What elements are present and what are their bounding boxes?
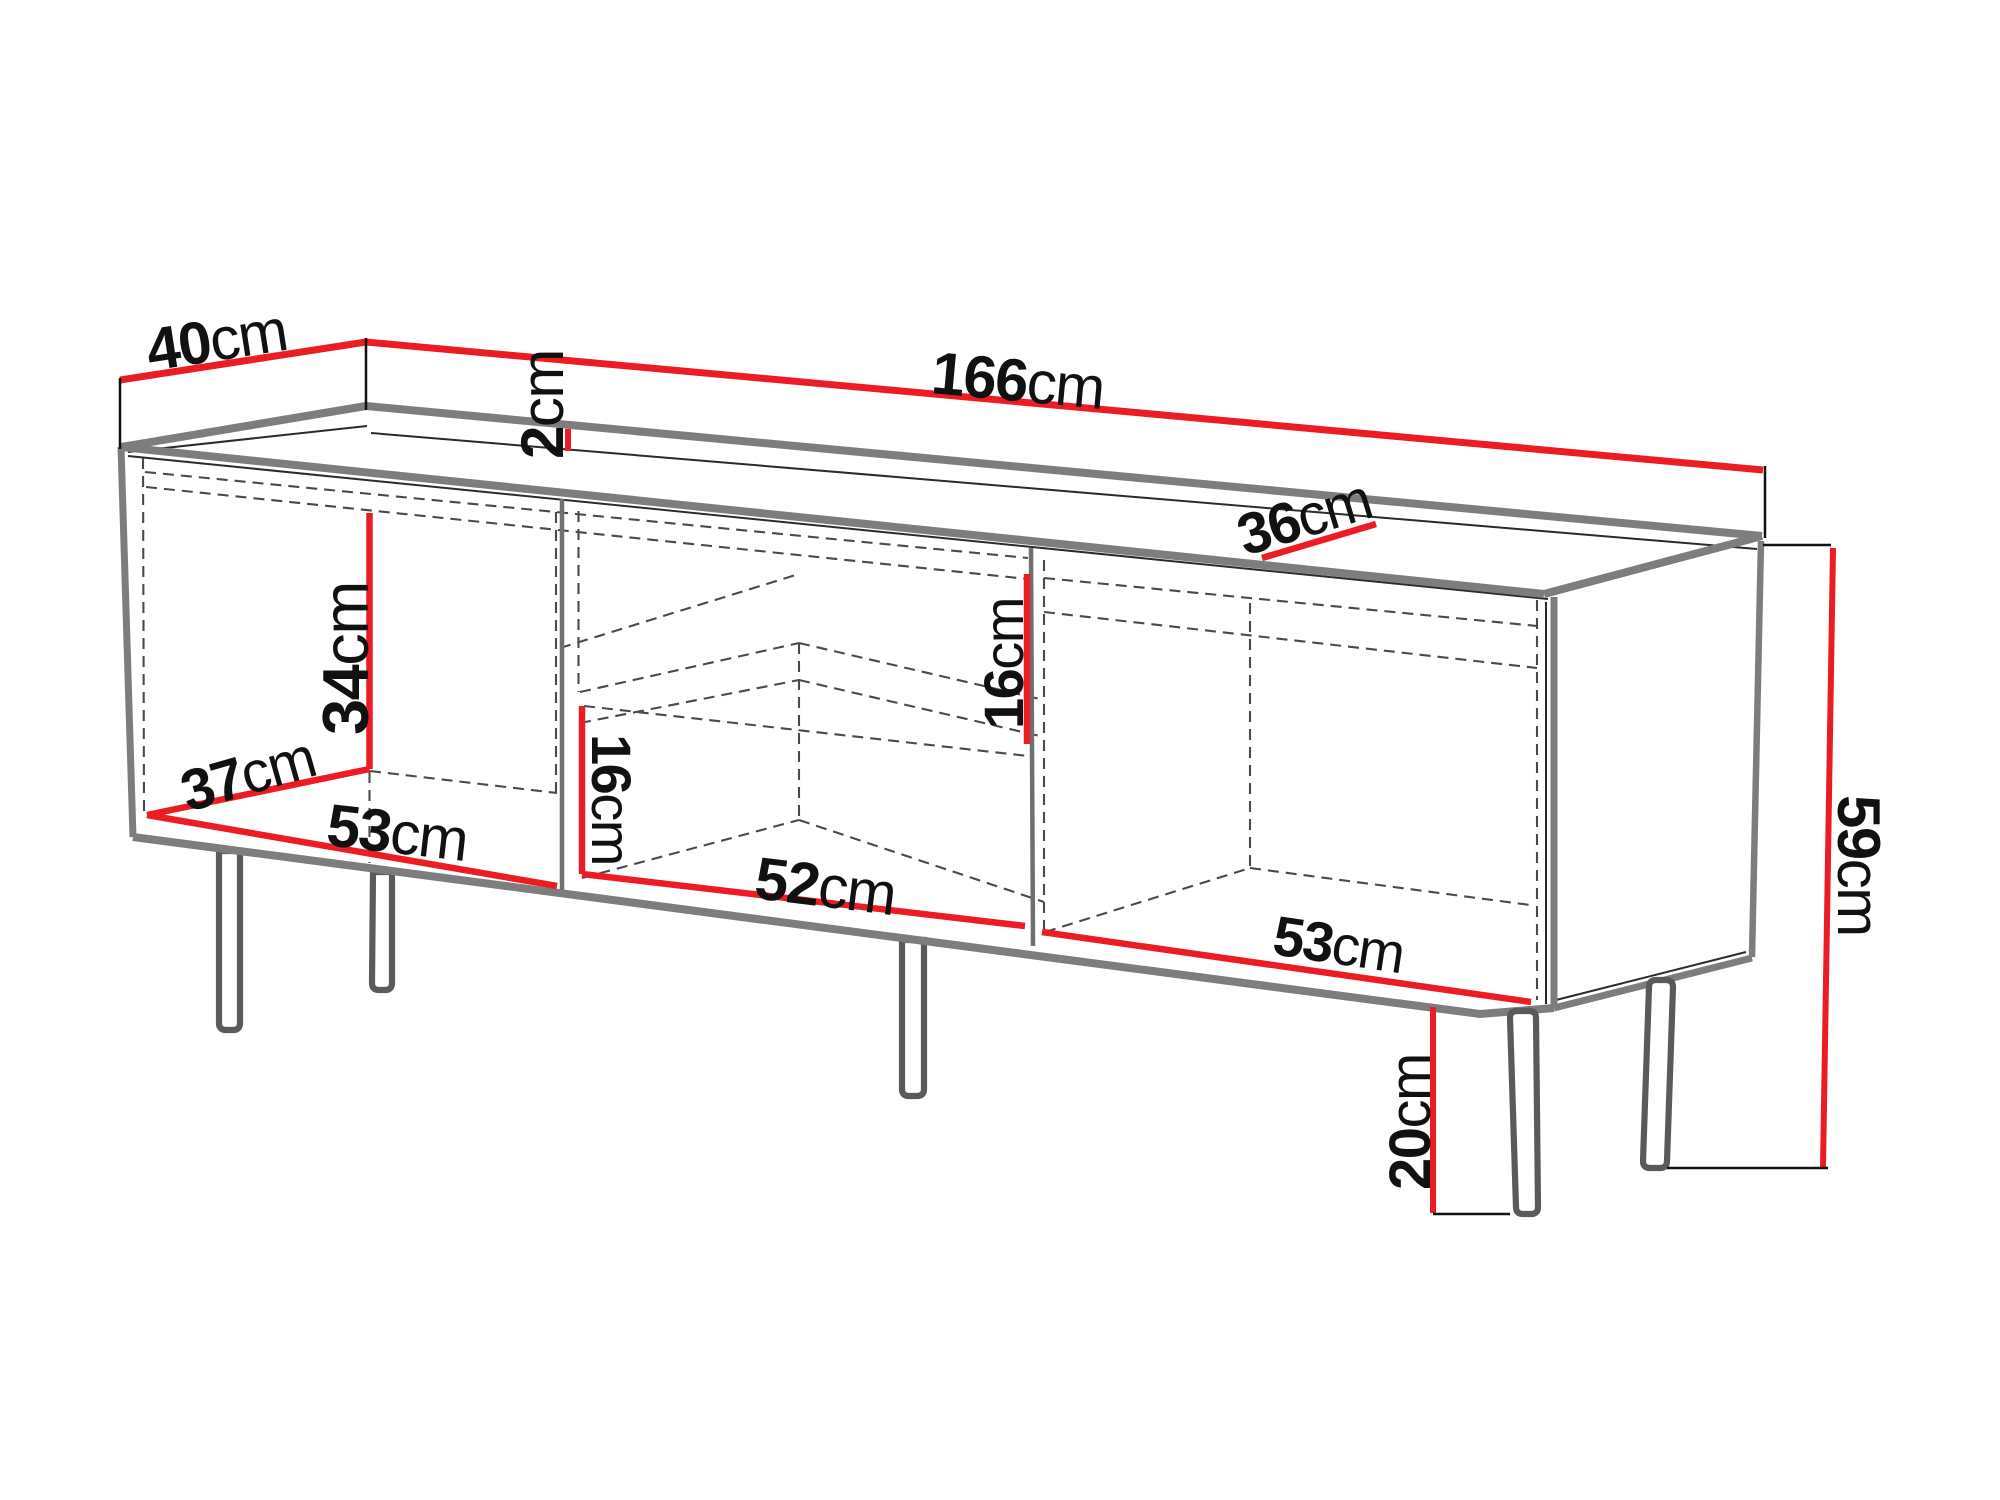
svg-text:59cm: 59cm [1825,795,1892,936]
svg-text:34cm: 34cm [309,582,382,735]
svg-text:16cm: 16cm [972,598,1035,729]
svg-text:2cm: 2cm [509,350,576,459]
svg-text:20cm: 20cm [1378,1054,1443,1190]
svg-text:16cm: 16cm [580,734,643,865]
